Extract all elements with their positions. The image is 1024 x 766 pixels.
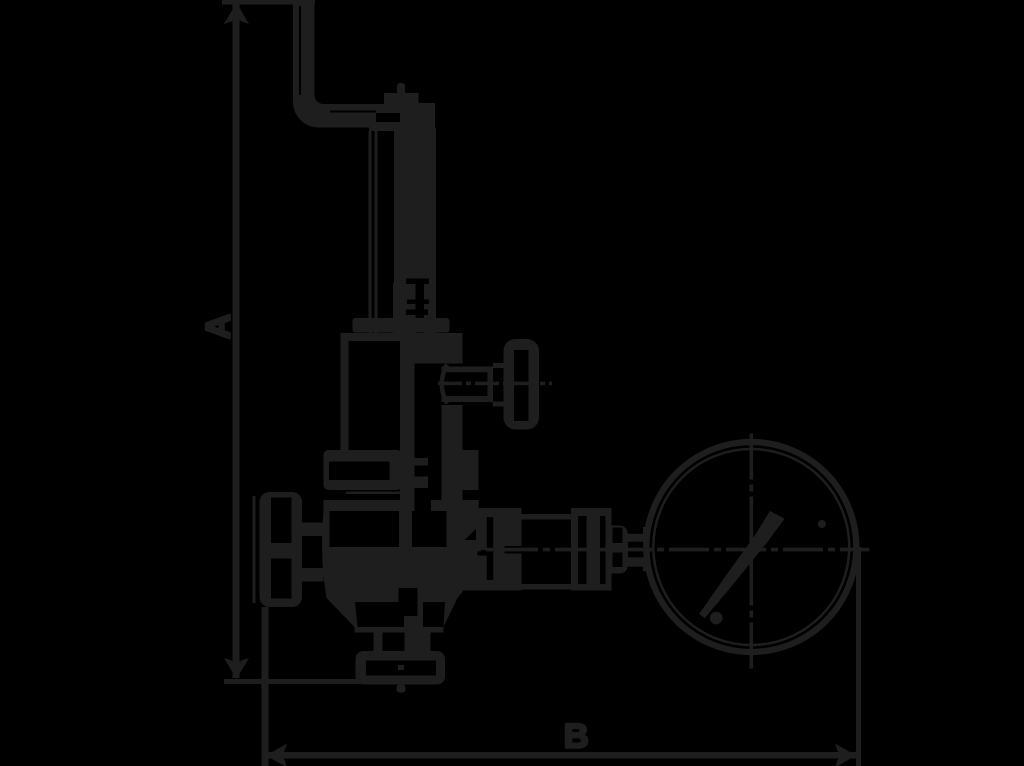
svg-text:B: B — [564, 718, 589, 756]
svg-text:A: A — [199, 314, 237, 339]
